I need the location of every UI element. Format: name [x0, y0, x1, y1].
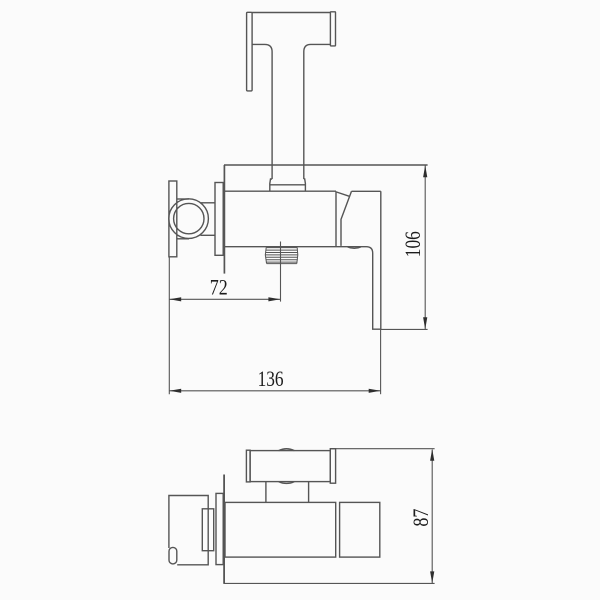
- svg-text:72: 72: [210, 274, 228, 299]
- svg-text:87: 87: [408, 509, 433, 527]
- svg-text:136: 136: [258, 366, 284, 391]
- svg-text:106: 106: [400, 231, 425, 257]
